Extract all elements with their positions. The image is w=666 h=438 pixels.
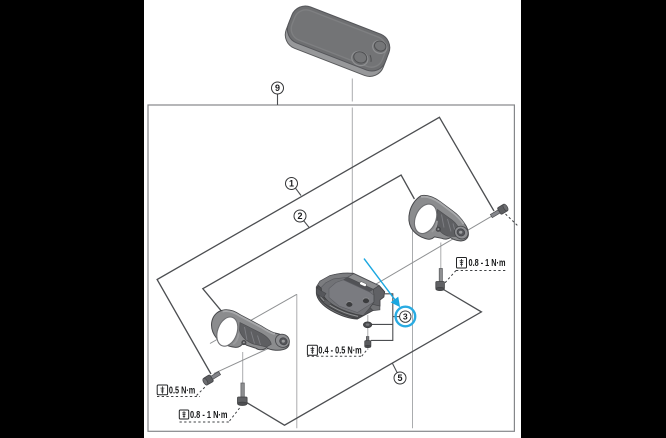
svg-text:2: 2	[297, 211, 302, 221]
svg-text:0.8 - 1 N·m: 0.8 - 1 N·m	[190, 410, 228, 421]
svg-text:3: 3	[403, 312, 408, 322]
svg-text:0.4 - 0.5 N·m: 0.4 - 0.5 N·m	[318, 346, 361, 357]
svg-text:9: 9	[275, 83, 280, 93]
svg-text:1: 1	[289, 179, 294, 189]
svg-text:5: 5	[397, 373, 402, 383]
svg-text:0.8 - 1 N·m: 0.8 - 1 N·m	[469, 258, 506, 269]
svg-text:0.5 N·m: 0.5 N·m	[169, 385, 195, 396]
